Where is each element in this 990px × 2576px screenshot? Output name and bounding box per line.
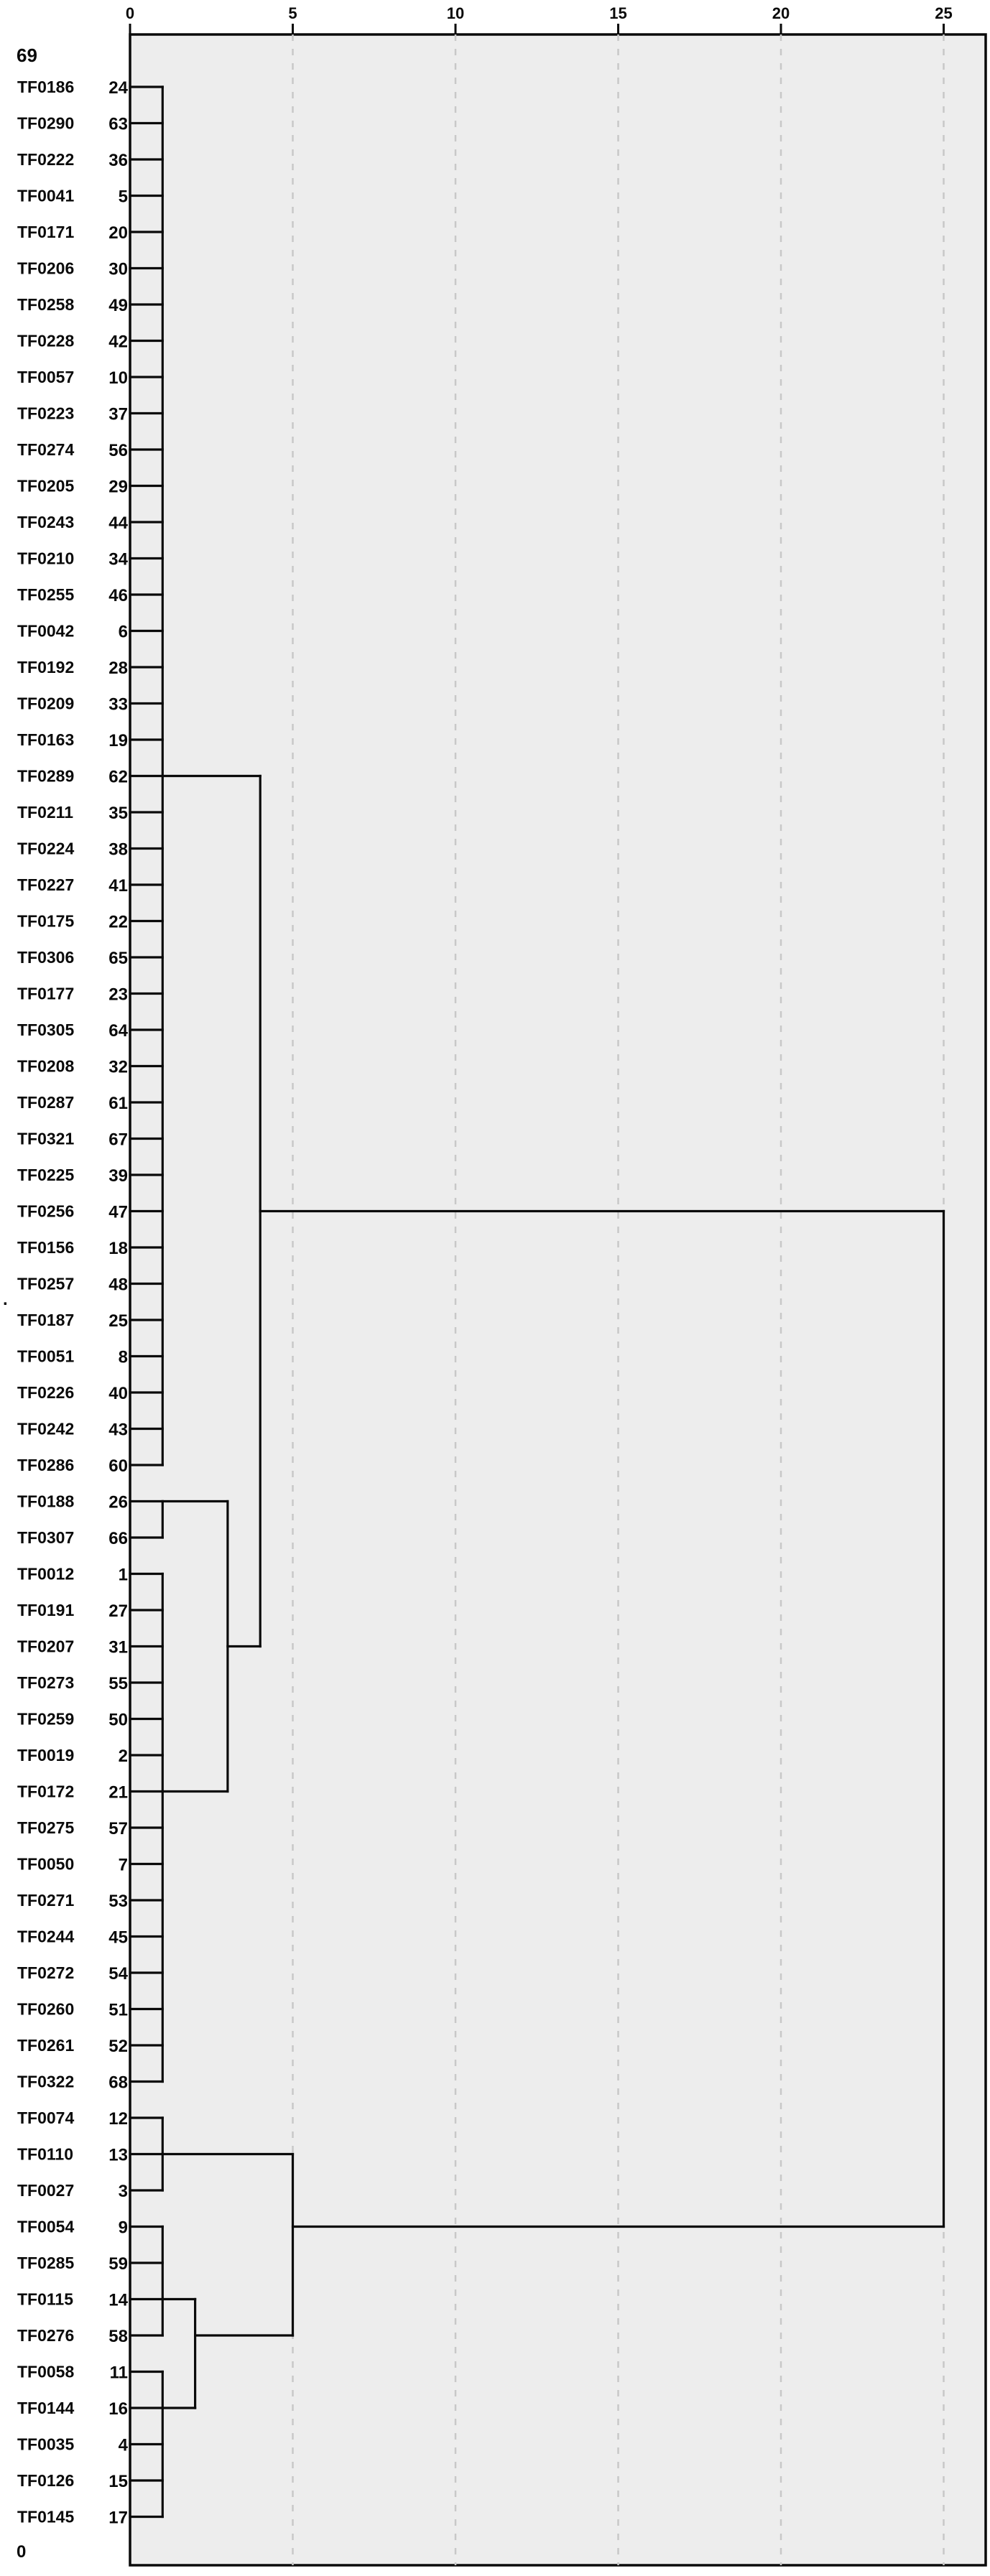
leaf-label: TF0306 (17, 948, 74, 967)
leaf-number: 39 (108, 1166, 128, 1186)
leaf-label: TF0242 (17, 1420, 74, 1438)
leaf-label: TF0110 (17, 2145, 73, 2164)
leaf-label: TF0126 (17, 2471, 74, 2490)
dendrogram-canvas: 0510152025TF018624TF029063TF022236TF0041… (0, 0, 990, 2576)
leaf-number: 23 (108, 985, 128, 1005)
leaf-number: 46 (108, 586, 128, 605)
leaf-label: TF0261 (17, 2036, 74, 2055)
leaf-number: 8 (119, 1348, 128, 1367)
plot-area (130, 34, 986, 2565)
leaf-number: 41 (108, 876, 128, 896)
leaf-number: 33 (108, 695, 128, 715)
leaf-number: 14 (108, 2291, 128, 2310)
leaf-number: 26 (108, 1493, 128, 1512)
leaf-label: TF0171 (17, 223, 74, 241)
leaf-label: TF0058 (17, 2363, 74, 2381)
leaf-number: 24 (108, 78, 128, 98)
leaf-number: 17 (108, 2508, 128, 2528)
leaf-label: TF0175 (17, 912, 74, 931)
leaf-label: TF0019 (17, 1746, 74, 1764)
leaf-number: 30 (108, 260, 128, 279)
leaf-number: 51 (108, 2001, 128, 2020)
leaf-label: TF0207 (17, 1637, 74, 1656)
leaf-number: 4 (119, 2436, 129, 2455)
leaf-number: 58 (108, 2327, 128, 2346)
leaf-number: 22 (108, 913, 128, 932)
leaf-number: 37 (108, 405, 128, 424)
leaf-label: TF0027 (17, 2181, 74, 2200)
leaf-number: 12 (108, 2109, 128, 2129)
leaf-number: 42 (108, 333, 128, 352)
leaf-label: TF0172 (17, 1782, 74, 1801)
leaf-label: TF0209 (17, 694, 74, 713)
leaf-number: 57 (108, 1819, 128, 1838)
leaf-label: TF0285 (17, 2254, 74, 2272)
leaf-number: 7 (119, 1856, 128, 1875)
leaf-label: TF0287 (17, 1093, 74, 1112)
leaf-number: 27 (108, 1601, 128, 1621)
leaf-number: 19 (108, 731, 128, 750)
leaf-label: TF0050 (17, 1855, 74, 1874)
leaf-number: 36 (108, 151, 128, 170)
leaf-label: TF0307 (17, 1528, 74, 1547)
leaf-number: 63 (108, 115, 128, 134)
leaf-number: 32 (108, 1058, 128, 1077)
leaf-label: TF0305 (17, 1020, 74, 1039)
leaf-number: 31 (108, 1638, 128, 1657)
leaf-label: TF0145 (17, 2508, 74, 2526)
leaf-label: TF0074 (17, 2108, 74, 2127)
leaf-label: TF0042 (17, 622, 74, 641)
leaf-label: TF0222 (17, 150, 74, 169)
leaf-label: TF0186 (17, 78, 74, 96)
leaf-label: TF0211 (17, 803, 73, 822)
leaf-number: 11 (110, 2363, 128, 2383)
leaf-label: TF0206 (17, 259, 74, 278)
leaf-label: TF0057 (17, 368, 74, 386)
leaf-label: TF0187 (17, 1311, 74, 1329)
case-count-label: 69 (17, 45, 37, 67)
leaf-label: TF0259 (17, 1710, 74, 1729)
leaf-label: TF0191 (17, 1601, 74, 1619)
leaf-label: TF0225 (17, 1166, 74, 1184)
leaf-number: 47 (108, 1203, 128, 1222)
leaf-label: TF0192 (17, 658, 74, 676)
leaf-label: TF0156 (17, 1238, 74, 1257)
leaf-number: 65 (108, 949, 128, 968)
leaf-number: 61 (108, 1094, 128, 1113)
leaf-label: TF0273 (17, 1673, 74, 1692)
leaf-number: 2 (119, 1747, 128, 1766)
leaf-label: TF0275 (17, 1818, 74, 1837)
dendrogram-plot: 0510152025TF018624TF029063TF022236TF0041… (0, 0, 990, 2576)
leaf-label: TF0255 (17, 585, 74, 604)
leaf-number: 68 (108, 2073, 128, 2093)
leaf-number: 6 (119, 623, 128, 642)
axis-tick-label-10: 10 (447, 4, 464, 22)
leaf-number: 38 (108, 840, 128, 860)
leaf-label: TF0228 (17, 332, 74, 350)
axis-tick-label-0: 0 (126, 4, 134, 22)
leaf-label: TF0223 (17, 404, 74, 423)
leaf-label: TF0163 (17, 730, 74, 749)
leaf-number: 1 (119, 1566, 128, 1585)
leaf-label: TF0035 (17, 2435, 74, 2454)
leaf-number: 20 (108, 223, 128, 243)
leaf-number: 25 (108, 1311, 128, 1331)
axis-tick-label-15: 15 (609, 4, 626, 22)
leaf-number: 43 (108, 1420, 128, 1440)
leaf-number: 21 (108, 1783, 128, 1803)
leaf-label: TF0224 (17, 840, 74, 858)
leaf-label: TF0322 (17, 2073, 74, 2091)
leaf-number: 54 (108, 1964, 128, 1984)
leaf-label: TF0210 (17, 549, 74, 568)
axis-tick-label-5: 5 (288, 4, 297, 22)
leaf-number: 5 (119, 187, 128, 207)
leaf-label: TF0290 (17, 114, 74, 133)
leaf-number: 53 (108, 1892, 128, 1911)
leaf-label: TF0276 (17, 2326, 74, 2345)
leaf-number: 29 (108, 478, 128, 497)
leaf-label: TF0244 (17, 1928, 74, 1946)
leaf-number: 15 (108, 2472, 128, 2491)
leaf-label: TF0321 (17, 1130, 74, 1148)
leaf-number: 59 (108, 2254, 128, 2274)
leaf-label: TF0271 (17, 1891, 74, 1910)
leaf-number: 49 (108, 296, 128, 315)
leaf-label: TF0188 (17, 1492, 74, 1511)
stray-mark: . (3, 1290, 8, 1310)
leaf-label: TF0286 (17, 1456, 74, 1474)
leaf-number: 56 (108, 441, 128, 460)
leaf-number: 3 (119, 2182, 128, 2201)
leaf-number: 35 (108, 804, 128, 823)
leaf-label: TF0257 (17, 1275, 74, 1293)
leaf-label: TF0256 (17, 1202, 74, 1221)
leaf-label: TF0144 (17, 2399, 74, 2417)
leaf-label: TF0258 (17, 295, 74, 314)
leaf-label: TF0260 (17, 2000, 74, 2019)
leaf-number: 10 (108, 368, 128, 388)
leaf-number: 62 (108, 768, 128, 787)
leaf-label: TF0051 (17, 1347, 74, 1366)
leaf-label: TF0208 (17, 1057, 74, 1076)
leaf-label: TF0205 (17, 477, 74, 496)
leaf-label: TF0012 (17, 1565, 74, 1584)
leaf-number: 28 (108, 659, 128, 678)
leaf-label: TF0289 (17, 767, 74, 786)
leaf-number: 50 (108, 1711, 128, 1730)
leaf-label: TF0243 (17, 513, 74, 531)
leaf-number: 18 (108, 1239, 128, 1258)
axis-tick-label-20: 20 (772, 4, 790, 22)
leaf-number: 9 (119, 2218, 128, 2238)
leaf-label: TF0272 (17, 1963, 74, 1982)
leaf-number: 34 (108, 550, 128, 569)
leaf-label: TF0274 (17, 440, 74, 459)
leaf-label: TF0115 (17, 2290, 73, 2309)
bottom-zero-label: 0 (17, 2542, 26, 2562)
leaf-number: 67 (108, 1130, 128, 1150)
leaf-number: 40 (108, 1384, 128, 1403)
leaf-number: 66 (108, 1529, 128, 1548)
leaf-number: 48 (108, 1275, 128, 1295)
leaf-number: 64 (108, 1021, 128, 1041)
leaf-number: 60 (108, 1456, 128, 1476)
leaf-number: 45 (108, 1928, 128, 1948)
leaf-label: TF0054 (17, 2218, 74, 2236)
leaf-number: 52 (108, 2037, 128, 2056)
leaf-label: TF0226 (17, 1383, 74, 1402)
leaf-label: TF0177 (17, 985, 74, 1003)
leaf-number: 44 (108, 513, 128, 533)
leaf-label: TF0041 (17, 187, 74, 205)
leaf-number: 16 (108, 2399, 128, 2419)
leaf-number: 13 (108, 2146, 128, 2165)
leaf-number: 55 (108, 1674, 128, 1693)
axis-tick-label-25: 25 (935, 4, 952, 22)
leaf-label: TF0227 (17, 875, 74, 894)
